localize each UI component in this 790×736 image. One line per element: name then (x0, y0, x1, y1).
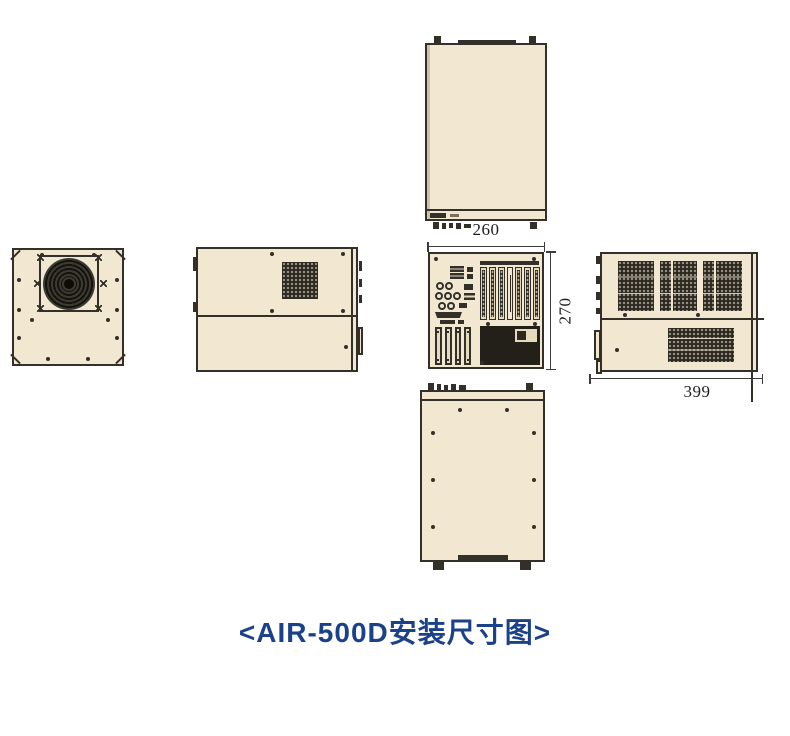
round-connector-icon (447, 302, 455, 310)
vent-grille (673, 261, 697, 311)
io-port (464, 293, 475, 300)
screw (431, 525, 435, 529)
label-plate (430, 213, 446, 218)
screw (115, 278, 119, 282)
dimension-height-label: 270 (556, 297, 576, 324)
screw (92, 253, 96, 257)
fan-screw-x (34, 280, 41, 287)
rear-panel (428, 252, 544, 369)
expansion-slot (524, 267, 531, 320)
io-connectors (433, 266, 478, 324)
bezel-handle (358, 327, 363, 355)
fan-screw-x (95, 254, 102, 261)
screw (615, 348, 619, 352)
right-side-view-group: 399 (600, 252, 770, 404)
top-view (425, 36, 547, 232)
rear-edge-strip (422, 392, 543, 401)
screw (458, 408, 462, 412)
dimension-line (590, 378, 762, 379)
screw (344, 345, 348, 349)
expansion-slot (515, 267, 522, 320)
power-supply (480, 326, 540, 365)
dsub-connector-icon (435, 312, 462, 318)
screw (431, 478, 435, 482)
rear-view-group: 260 (428, 220, 584, 372)
dimension-width-label: 260 (428, 220, 544, 240)
expansion-slot (480, 267, 487, 320)
vent-grille (716, 261, 742, 311)
screw (115, 336, 119, 340)
bottom-panel (420, 390, 545, 562)
io-port (467, 274, 473, 279)
expansion-slots (480, 267, 540, 320)
screw (532, 478, 536, 482)
dimension-line (550, 252, 551, 369)
label-mark (450, 214, 459, 217)
slot-bracket (445, 327, 452, 365)
screw (505, 408, 509, 412)
panel-split-line (198, 315, 358, 317)
expansion-slot (533, 267, 540, 320)
left-side-view (196, 247, 362, 372)
dimension-drawing-canvas: 260 (0, 0, 790, 736)
screw (40, 253, 44, 257)
screw (115, 308, 119, 312)
round-connector-icon (453, 292, 461, 300)
screw (30, 318, 34, 322)
front-edge-bar (458, 555, 508, 561)
round-connector-icon (445, 282, 453, 290)
vent-grille (618, 261, 654, 311)
round-connector-icon (435, 292, 443, 300)
vent-grille (660, 261, 671, 311)
dimension-depth-label: 399 (590, 382, 762, 402)
slot-bracket (455, 327, 462, 365)
screw (341, 252, 345, 256)
slot-bracket (435, 327, 442, 365)
screw (17, 336, 21, 340)
dimension-line (428, 246, 544, 247)
bezel-tab (359, 279, 362, 287)
screw (106, 318, 110, 322)
connector-stub (428, 383, 434, 390)
screw (17, 308, 21, 312)
foot (520, 562, 531, 570)
screw (270, 309, 274, 313)
screw (532, 431, 536, 435)
screw (434, 257, 438, 261)
dimension-depth: 399 (590, 378, 762, 404)
drawing-caption: <AIR-500D安装尺寸图> (0, 611, 790, 651)
screw (480, 361, 484, 365)
io-port (464, 284, 473, 290)
io-port (467, 267, 473, 272)
round-connector-icon (438, 302, 446, 310)
io-port (458, 320, 464, 324)
screw (623, 313, 627, 317)
slot-header-bar (480, 261, 539, 265)
screw (86, 357, 90, 361)
expansion-slot (489, 267, 496, 320)
round-connector-icon (436, 282, 444, 290)
dimension-height: 270 (550, 252, 580, 369)
fan-screw-x (95, 305, 102, 312)
dimension-width: 260 (428, 220, 544, 247)
usb-stack-icon (450, 273, 464, 279)
expansion-slot (498, 267, 505, 320)
fan-screw-x (100, 280, 107, 287)
fan-icon (43, 258, 95, 310)
fan-screw-x (37, 305, 44, 312)
screw (17, 278, 21, 282)
rear-edge-strip (427, 209, 545, 219)
power-socket-icon (515, 329, 537, 342)
panel-split-line (602, 318, 764, 320)
slot-bracket (464, 327, 471, 365)
front-bezel-edge (351, 249, 358, 370)
vent-grille (282, 262, 318, 299)
expansion-slot (507, 267, 514, 320)
screw (270, 252, 274, 256)
screw (431, 431, 435, 435)
vent-grille (668, 328, 734, 362)
io-port (440, 320, 455, 324)
screw (696, 313, 700, 317)
front-view (12, 248, 124, 366)
connector-stub (526, 383, 533, 390)
foot (433, 562, 444, 570)
bezel-tab (359, 295, 362, 303)
io-port (459, 303, 467, 308)
bottom-view (420, 383, 545, 575)
lower-slot-brackets (435, 327, 471, 365)
screw (46, 357, 50, 361)
top-panel (425, 43, 547, 221)
bezel-tab (359, 261, 362, 271)
screw (532, 525, 536, 529)
side-panel (196, 247, 358, 372)
round-connector-icon (444, 292, 452, 300)
usb-stack-icon (450, 266, 464, 272)
screw (341, 309, 345, 313)
vent-grille (703, 261, 714, 311)
